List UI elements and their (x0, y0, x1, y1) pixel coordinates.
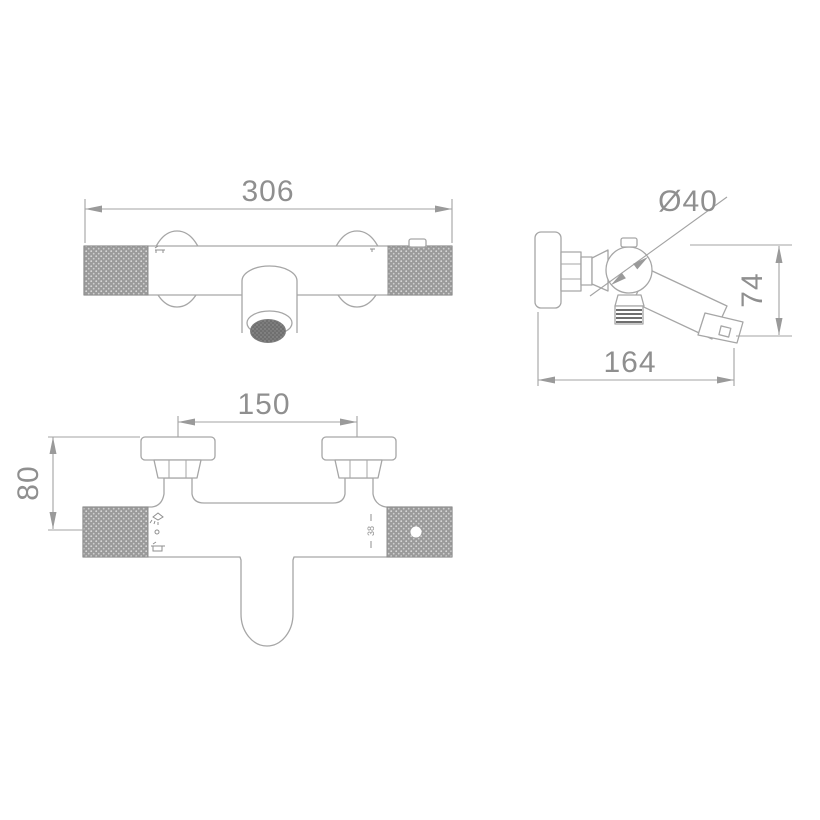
left-union-nut (154, 460, 201, 478)
dim-40-label: Ø40 (658, 185, 718, 218)
dim-150-label: 150 (237, 388, 290, 421)
front-view-top: 306 (84, 175, 452, 343)
dim-306: 306 (85, 175, 452, 243)
safety-button (409, 239, 426, 247)
right-knurled-handle (388, 246, 452, 295)
connector-stub (581, 257, 592, 285)
temp-stop-button (411, 527, 422, 538)
union-nut (561, 252, 581, 291)
temp-38-label: 38 (366, 526, 376, 536)
dim-150: 150 (178, 388, 357, 437)
mixer-body (83, 478, 452, 646)
technical-drawing-canvas: 306 Ø40 (0, 0, 820, 820)
dim-164-label: 164 (603, 346, 656, 379)
wall-plate (535, 232, 561, 308)
outlet-neck (615, 295, 644, 306)
left-union-flange (141, 437, 215, 460)
dim-80-label: 80 (12, 465, 45, 500)
aerator-notch (719, 326, 731, 337)
left-knurled-handle-bottom (83, 507, 148, 557)
dim-74-label: 74 (736, 272, 769, 307)
aerator-face (251, 320, 286, 343)
dim-306-label: 306 (241, 175, 294, 208)
right-union-nut (335, 460, 382, 478)
handle-button (621, 238, 637, 247)
side-view: Ø40 74 164 (535, 185, 792, 386)
right-union-flange (322, 437, 396, 460)
front-view-bottom: 38 150 80 (12, 388, 452, 646)
handle-circle (606, 247, 652, 293)
left-knurled-handle (84, 246, 148, 295)
mixer-tap-drawing: 306 Ø40 (0, 0, 820, 820)
